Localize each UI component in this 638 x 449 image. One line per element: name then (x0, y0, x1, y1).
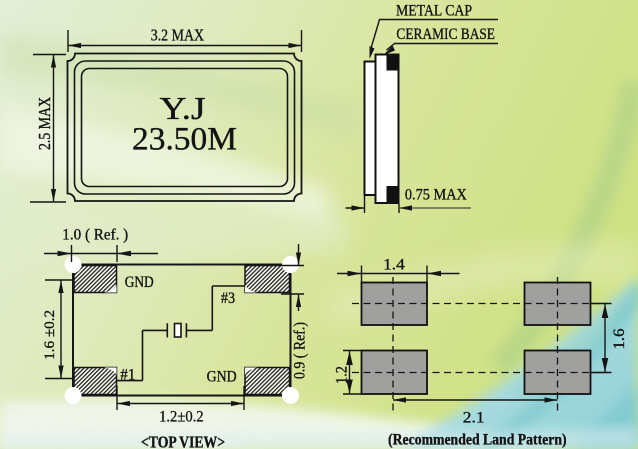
svg-text:1.6: 1.6 (611, 328, 628, 349)
svg-text:1.2: 1.2 (334, 366, 351, 384)
svg-text:23.50M: 23.50M (132, 122, 237, 158)
svg-text:2.5 MAX: 2.5 MAX (35, 97, 54, 150)
svg-text:0.75 MAX: 0.75 MAX (405, 187, 467, 204)
svg-text:3.2 MAX: 3.2 MAX (151, 26, 204, 45)
svg-text:#3: #3 (221, 290, 235, 307)
svg-text:(Recommended Land Pattern): (Recommended Land Pattern) (388, 432, 567, 449)
svg-text:CERAMIC BASE: CERAMIC BASE (396, 26, 495, 43)
svg-text:1.6 ±0.2: 1.6 ±0.2 (42, 310, 58, 360)
svg-text:2.1: 2.1 (463, 410, 485, 427)
svg-text:GND: GND (125, 274, 154, 291)
svg-text:0.9 ( Ref.): 0.9 ( Ref.) (292, 322, 309, 379)
svg-text:<TOP VIEW>: <TOP VIEW> (141, 432, 225, 449)
svg-text:1.2±0.2: 1.2±0.2 (159, 409, 204, 426)
svg-text:1.4: 1.4 (383, 256, 405, 273)
svg-text:METAL CAP: METAL CAP (396, 3, 472, 20)
svg-text:1.0 ( Ref. ): 1.0 ( Ref. ) (62, 226, 128, 243)
svg-text:GND: GND (207, 368, 237, 385)
